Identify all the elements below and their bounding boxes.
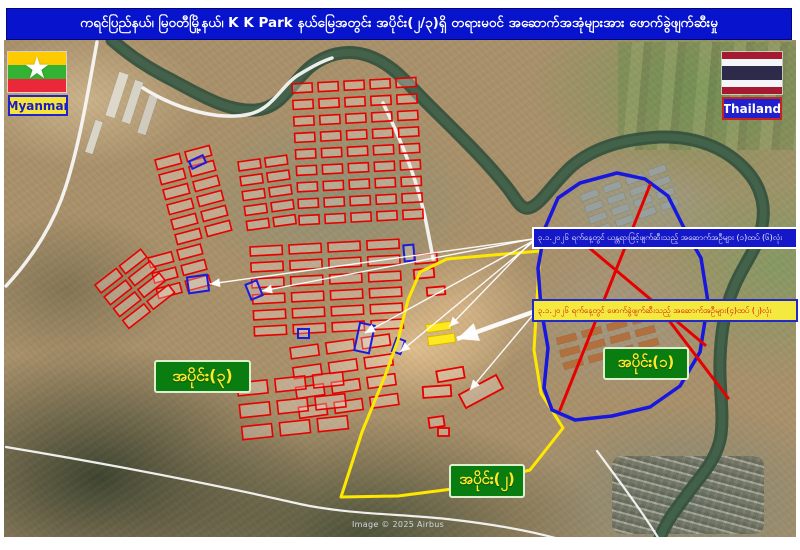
- thailand-flag: [722, 52, 782, 94]
- imagery-attribution: Image © 2025 Airbus: [352, 520, 444, 529]
- thailand-village-texture: [612, 456, 764, 534]
- callout-machinery-demolished: ၃.၁.၂၀၂၆ ရက်နေ့တွင် ယန္တရားဖြင့်ဖျက်ဆီးသ…: [532, 227, 798, 249]
- zone2-label: အပိုင်း(၂): [449, 464, 525, 498]
- myanmar-flag: ★: [8, 52, 66, 92]
- zone1-label: အပိုင်း(၁): [603, 347, 689, 380]
- thailand-label: Thailand: [722, 97, 782, 120]
- infographic-map-page: ကရင်ပြည်နယ်၊ မြဝတီမြို့နယ်၊ K K Park နယ်…: [0, 0, 800, 550]
- myanmar-label: Myanmar: [8, 95, 68, 116]
- page-title: ကရင်ပြည်နယ်၊ မြဝတီမြို့နယ်၊ K K Park နယ်…: [80, 14, 718, 34]
- myanmar-flag-star-icon: ★: [8, 48, 66, 88]
- thailand-flag-stripes: [722, 52, 782, 94]
- title-bar: ကရင်ပြည်နယ်၊ မြဝတီမြို့နယ်၊ K K Park နယ်…: [6, 8, 792, 40]
- zone3-label: အပိုင်း(၃): [154, 360, 251, 393]
- callout-explosion-demolished: ၃.၁.၂၀၂၆ ရက်နေ့တွင် ဖောက်ခွဲဖျက်ဆီးသည့် …: [532, 299, 798, 322]
